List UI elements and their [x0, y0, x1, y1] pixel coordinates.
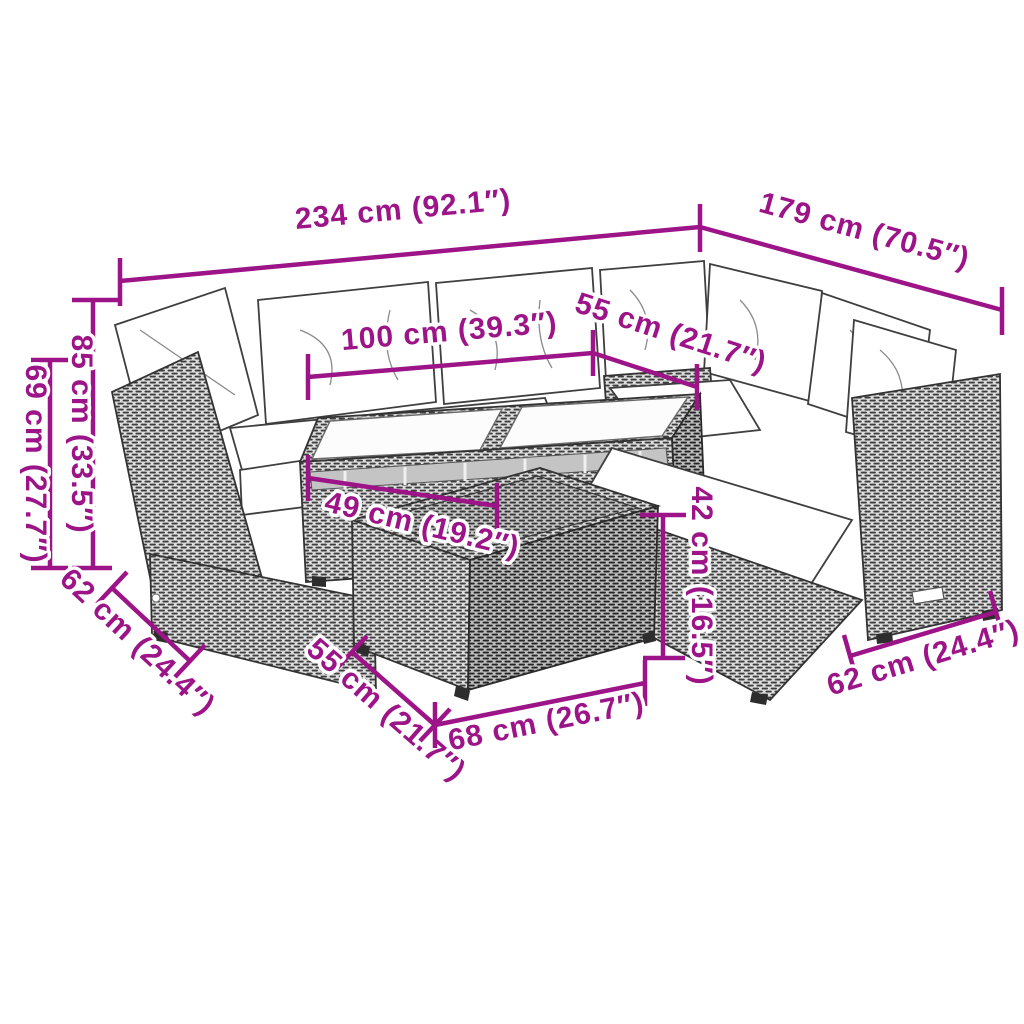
table-foot [312, 576, 326, 587]
dimension-label-small-table-length: 68 cm (26.7″) [445, 686, 647, 757]
dimension-back-height: 85 cm (33.5″) [65, 300, 122, 568]
dimension-label-right-width: 179 cm (70.5″) [756, 186, 974, 275]
dimension-label-arm-height: 69 cm (27.7″) [19, 364, 52, 563]
product-dimension-diagram: 234 cm (92.1″) 179 cm (70.5″) 100 cm (39… [0, 0, 1024, 1024]
dimension-label-back-height: 85 cm (33.5″) [65, 334, 98, 533]
dimension-label-total-width: 234 cm (92.1″) [294, 183, 513, 236]
brand-plate-left [152, 594, 160, 602]
furniture-diagram-canvas: 234 cm (92.1″) 179 cm (70.5″) 100 cm (39… [0, 0, 1024, 1024]
dimension-arm-height: 69 cm (27.7″) [19, 360, 68, 568]
dimension-label-small-table-height: 42 cm (16.5″) [685, 486, 718, 685]
